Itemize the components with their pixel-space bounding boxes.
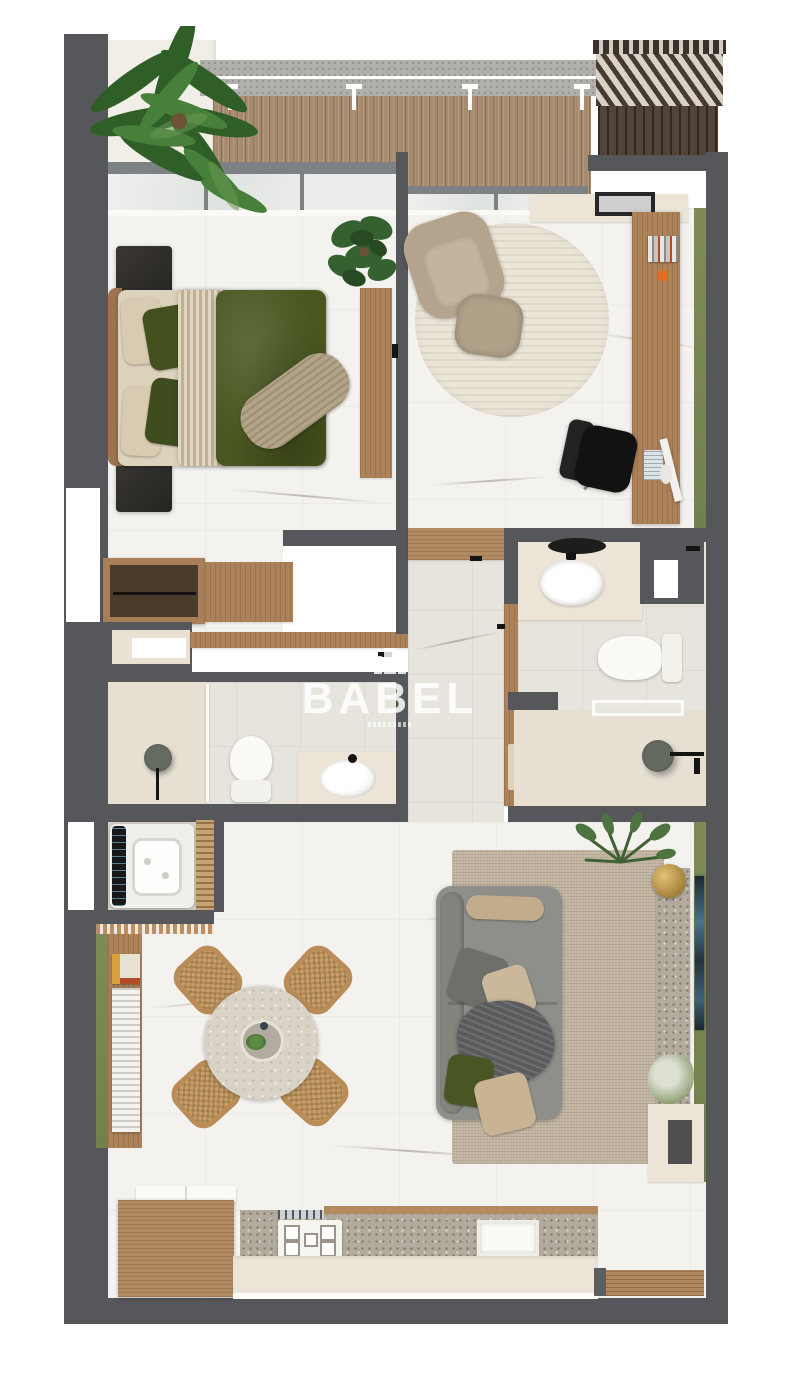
watermark: BABEL bbox=[288, 644, 492, 727]
ensuite-sink bbox=[540, 560, 604, 606]
entry-drain-mat bbox=[594, 1268, 606, 1296]
pergola-slats bbox=[596, 54, 723, 106]
ensuite-faucet bbox=[566, 552, 576, 560]
bedroom-tv-console bbox=[360, 288, 392, 478]
wall-bedroom-office bbox=[396, 152, 408, 564]
washer-drum bbox=[132, 838, 182, 896]
monitor-stand bbox=[660, 464, 672, 484]
ensuite-toilet-bowl bbox=[598, 636, 662, 680]
palm-plant bbox=[84, 26, 294, 226]
railing-light bbox=[462, 84, 478, 89]
ensuite-shower-arm bbox=[670, 752, 704, 756]
table-small-item bbox=[260, 1022, 268, 1030]
ensuite-shower-valve bbox=[694, 758, 700, 774]
ensuite-shower-floor bbox=[514, 710, 706, 806]
wall-bottom bbox=[64, 1298, 728, 1324]
kitchen-sink bbox=[477, 1220, 539, 1256]
wall-bath-bottom bbox=[64, 804, 410, 822]
desk-books bbox=[648, 236, 678, 262]
watermark-text: BABEL bbox=[288, 679, 492, 719]
table-centerpiece-plant bbox=[246, 1034, 266, 1050]
building-icon bbox=[374, 644, 406, 674]
round-mirror bbox=[548, 538, 606, 554]
ensuite-shower-head bbox=[642, 740, 674, 772]
wall-bedroom-bottom bbox=[283, 530, 408, 546]
open-wardrobe bbox=[103, 558, 205, 624]
washer-drum-dot bbox=[162, 872, 169, 879]
wall-ensuite-stub bbox=[508, 692, 558, 710]
book-stack bbox=[112, 988, 140, 1132]
pergola-edge-slats bbox=[593, 40, 726, 54]
cooktop-burner bbox=[284, 1241, 300, 1257]
washer-drum-dot bbox=[144, 858, 151, 865]
tv-cabinet-inset bbox=[668, 1120, 692, 1164]
monstera-plant bbox=[318, 204, 406, 300]
pergola-dark-deck bbox=[598, 106, 718, 157]
watermark-subtext bbox=[368, 722, 412, 727]
utensil-rail bbox=[278, 1210, 324, 1219]
cooktop-burner bbox=[284, 1225, 300, 1241]
desk-orange-item bbox=[658, 270, 667, 281]
kitchen-island bbox=[118, 1200, 234, 1297]
office-balcony-door-track bbox=[408, 186, 588, 194]
ottoman bbox=[452, 292, 526, 361]
sofa-bolster bbox=[466, 895, 545, 922]
toilet-bowl bbox=[230, 736, 272, 782]
cooktop-burner bbox=[320, 1241, 336, 1257]
wall-laundry-side bbox=[214, 820, 224, 912]
entry-wood-mat bbox=[606, 1270, 704, 1296]
kitchen-cabinet-front bbox=[233, 1256, 598, 1298]
railing-light bbox=[346, 84, 362, 89]
slatted-vent-strip bbox=[96, 924, 214, 934]
door-mullion bbox=[300, 174, 304, 210]
dining-green-wall bbox=[96, 934, 108, 1148]
ensuite-toilet-tank bbox=[662, 634, 682, 682]
washer-control-panel bbox=[112, 826, 126, 906]
shower-arm bbox=[156, 768, 159, 800]
counter-wood-trim bbox=[324, 1206, 598, 1214]
magazine bbox=[112, 954, 140, 984]
door-mullion bbox=[494, 190, 498, 210]
wall-ensuite-left bbox=[504, 528, 518, 604]
window-left-laundry bbox=[68, 820, 94, 910]
shower-glass-divider bbox=[206, 684, 209, 802]
wall-laundry-bottom bbox=[64, 910, 214, 924]
floor-plan-render: BABEL bbox=[0, 0, 800, 1398]
toilet-tank bbox=[231, 780, 271, 802]
wall-corridor-left-upper bbox=[396, 564, 408, 634]
window-niche-ensuite bbox=[654, 560, 678, 598]
door-handle bbox=[470, 556, 482, 561]
laundry-slatted-door bbox=[196, 820, 214, 914]
brass-bowl bbox=[652, 864, 686, 898]
cooktop-burner bbox=[320, 1225, 336, 1241]
open-door-top bbox=[408, 528, 504, 560]
wall-top-right bbox=[588, 155, 728, 171]
door-handle bbox=[392, 344, 398, 358]
railing-light bbox=[574, 84, 590, 89]
bath-faucet bbox=[348, 754, 357, 763]
wall-tv bbox=[695, 876, 704, 1030]
door-handle bbox=[497, 624, 505, 629]
bath-sink bbox=[320, 760, 376, 798]
shower-glass-tray bbox=[592, 700, 684, 716]
window-left-closet bbox=[66, 488, 100, 622]
kitchen-cabinet-lip bbox=[233, 1293, 598, 1299]
window-niche bbox=[132, 638, 186, 658]
wardrobe-rail bbox=[113, 592, 196, 595]
dresser bbox=[205, 562, 293, 622]
wall-right bbox=[706, 152, 728, 1324]
office-green-wall bbox=[694, 208, 706, 530]
cooktop-burner bbox=[304, 1233, 318, 1247]
towel-hook bbox=[686, 546, 700, 551]
